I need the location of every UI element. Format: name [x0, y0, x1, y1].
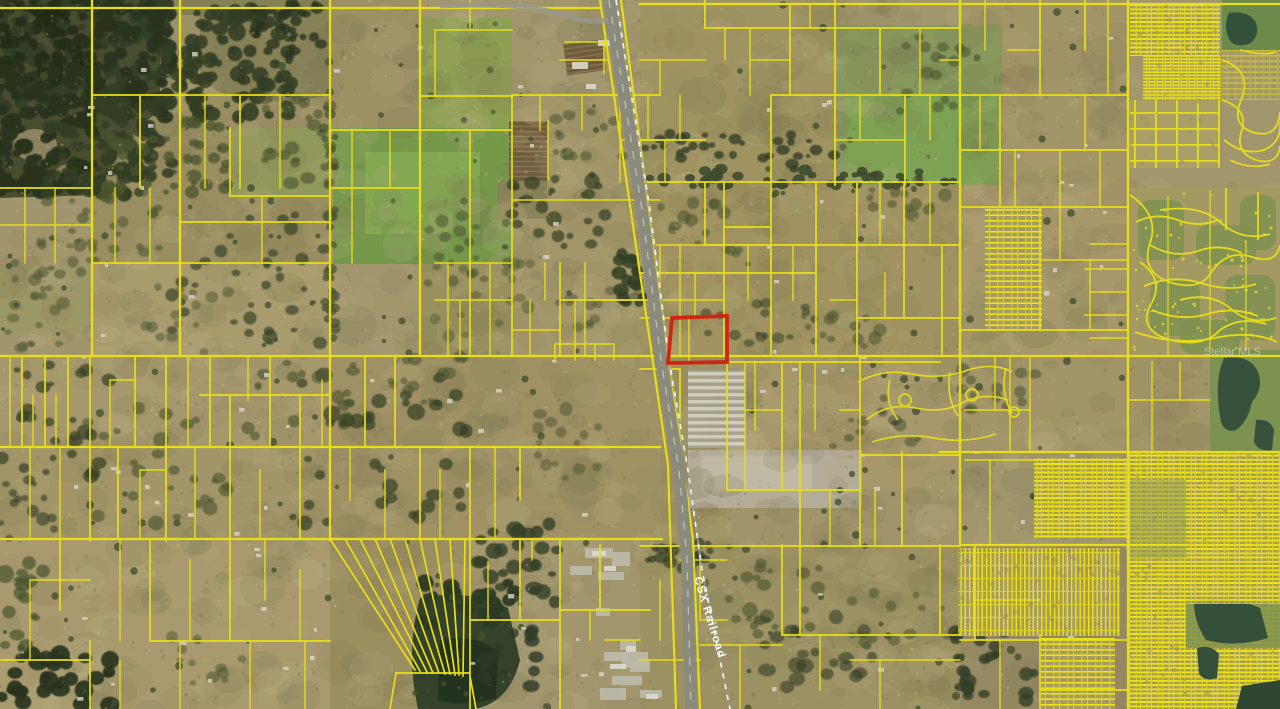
svg-text:Stellar MLS: Stellar MLS: [1204, 346, 1261, 358]
